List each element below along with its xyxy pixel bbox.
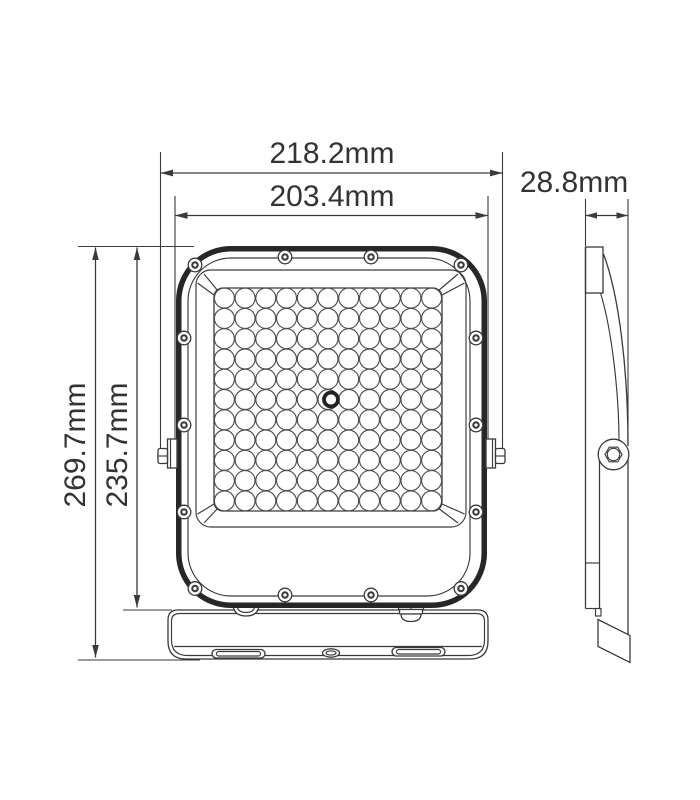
- mounting-bracket-base: [168, 610, 488, 659]
- housing-top-cap: [586, 247, 604, 293]
- arrowhead-top: [134, 248, 141, 261]
- side-view: [586, 247, 631, 663]
- dimension-depth: 28.8mm: [520, 166, 628, 446]
- frame-screw: [454, 258, 468, 272]
- arrowhead-bottom: [92, 645, 99, 658]
- dimension-label-width-inner: 203.4mm: [269, 180, 394, 213]
- arrowhead-right: [617, 212, 629, 218]
- frame-screw: [469, 418, 483, 432]
- mounting-slot-left: [212, 650, 265, 659]
- arrowhead-right: [490, 170, 503, 177]
- frame-screw: [188, 582, 202, 596]
- dimension-label-width-outer: 218.2mm: [269, 137, 394, 170]
- arrowhead-left: [586, 212, 598, 218]
- center-screw-ring: [324, 393, 338, 407]
- cable-gland-dome: [401, 614, 421, 622]
- frame-screw: [177, 505, 191, 519]
- frame-screw: [469, 331, 483, 345]
- frame-screw: [469, 505, 483, 519]
- bracket-foot: [598, 620, 630, 663]
- frame-screw: [454, 582, 468, 596]
- frame-screw: [278, 588, 292, 602]
- frame-screw: [177, 418, 191, 432]
- arrowhead-bottom: [134, 595, 141, 608]
- frame-screw: [364, 588, 378, 602]
- center-hole-oval: [323, 649, 340, 657]
- dimension-height-inner: 235.7mm: [101, 248, 172, 611]
- foot-mount-block: [596, 609, 602, 617]
- pivot-head: [598, 439, 629, 470]
- mounting-slot-right: [392, 648, 445, 657]
- dimension-label-height-inner: 235.7mm: [101, 382, 134, 507]
- frame-screw: [278, 250, 292, 264]
- knob-plate: [486, 439, 496, 468]
- housing-back-curve-outer: [604, 254, 629, 446]
- housing-back-curve-inner: [601, 293, 620, 441]
- arrowhead-left: [175, 212, 188, 219]
- floodlight-technical-drawing: 218.2mm 203.4mm 28.8mm 269.7mm 235.7mm: [0, 0, 700, 800]
- front-view: [158, 249, 505, 659]
- knob-plate: [168, 439, 178, 468]
- frame-screw: [177, 331, 191, 345]
- arrowhead-top: [92, 248, 99, 261]
- dimension-label-depth: 28.8mm: [520, 166, 628, 199]
- dimension-label-height-outer: 269.7mm: [59, 382, 92, 507]
- arrowhead-right: [476, 212, 489, 219]
- frame-screw: [188, 258, 202, 272]
- frame-screw: [364, 250, 378, 264]
- cable-gland-cap-mid: [400, 610, 423, 615]
- arrowhead-left: [161, 170, 174, 177]
